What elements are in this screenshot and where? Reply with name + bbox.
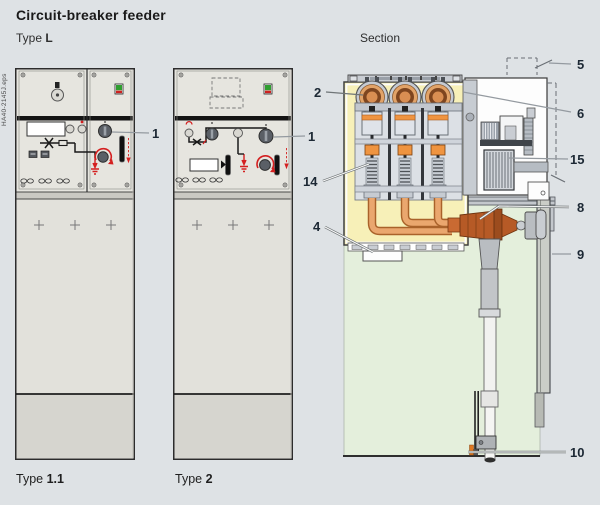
callout-4: 4 — [313, 219, 320, 234]
operating-mechanism-compartment — [463, 78, 549, 200]
callout-6: 6 — [577, 106, 584, 121]
callout-10: 10 — [570, 445, 584, 460]
section-view — [343, 58, 565, 463]
operating-lever-slot — [120, 136, 125, 162]
type-1-1-label: Type 1.1 — [16, 472, 64, 486]
callout-5: 5 — [577, 57, 584, 72]
front-view-type-2 — [174, 69, 293, 460]
spring-status-indicator — [264, 84, 272, 94]
section-label: Section — [360, 31, 400, 45]
callout-1-front-left: 1 — [152, 126, 159, 141]
type-l-label: Type L — [16, 31, 53, 45]
callout-15: 15 — [570, 152, 584, 167]
callout-2: 2 — [314, 85, 321, 100]
callout-8: 8 — [577, 200, 584, 215]
indicator-window — [190, 159, 218, 171]
callout-1-front-middle: 1 — [308, 129, 315, 144]
page-title: Circuit-breaker feeder — [16, 7, 166, 23]
callout-9: 9 — [577, 247, 584, 262]
front-view-type-1-1 — [16, 69, 135, 460]
spring-status-indicator — [115, 84, 123, 94]
filename-watermark: HA40-2145J.eps — [1, 64, 10, 126]
type-2-label: Type 2 — [175, 472, 213, 486]
diagram-artwork — [0, 0, 600, 505]
indicator-window — [27, 122, 65, 136]
vessel-bottom-box — [363, 251, 402, 261]
callout-14: 14 — [303, 174, 317, 189]
circuit-breaker-feeder-figure: Circuit-breaker feeder Type L Section HA… — [0, 0, 600, 505]
